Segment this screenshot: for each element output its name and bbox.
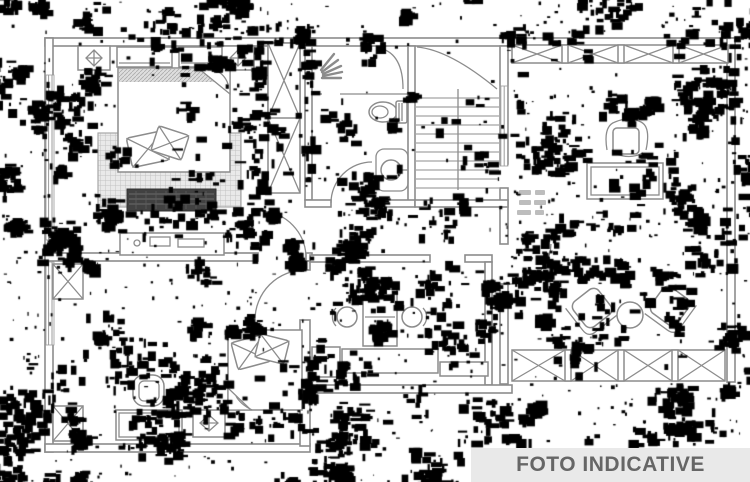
wall-segment [305,46,312,200]
wall-segment [45,444,310,452]
shower-spray-icon [321,54,342,78]
window-railing-bottom [512,350,725,381]
upper-bathroom [312,48,408,191]
office-chair-icon [606,119,648,157]
armchair-icon [645,284,697,336]
window-railing-top [512,45,728,63]
wall-segment [500,188,508,244]
wall-segment [295,385,512,393]
single-bed [228,330,302,410]
wall-segment [415,200,508,207]
radiator [500,86,508,166]
master-bedroom [78,46,254,255]
pillar [53,264,83,441]
desk [587,163,663,199]
sideboard [120,233,224,255]
door-swing [508,244,551,284]
wall-segment [500,284,508,384]
room-label-smudge [517,190,546,215]
ceiling-light-icon [193,410,225,437]
vanity-counter [342,349,438,373]
floor-plan-image: FOTO INDICATIVE [0,0,750,482]
shower-enclosure [379,48,403,89]
wardrobe [268,43,300,193]
door-swing [255,270,305,320]
wall-cabinet [117,47,172,67]
door-swing [331,162,372,203]
radiator [46,75,54,240]
vanity-counter [312,347,340,377]
washbasin-icon [402,307,427,327]
toilet-icon [369,101,407,123]
ceiling-light-icon [78,46,110,70]
bedroom-armchair [133,375,164,406]
living-room [517,119,696,337]
staircase [416,47,499,190]
armchair-icon [566,286,618,338]
washbasin-icon [332,307,357,327]
wall-segment [310,255,430,262]
second-bedroom [116,330,302,440]
door-swing [262,211,306,257]
wall-segment [300,261,310,270]
wall-segment [465,255,492,262]
lower-bathroom [312,289,488,377]
wall-segment [305,200,331,207]
wall-segment [372,200,415,207]
ceiling-light-icon [222,46,254,70]
wall-segment [727,38,735,382]
washbasin-icon [376,149,408,191]
foto-indicative-banner: FOTO INDICATIVE [471,448,750,482]
storage-bench [127,189,216,211]
wall-segment [408,46,415,204]
banner-label: FOTO INDICATIVE [516,453,705,477]
floor-plan-drawing [0,0,750,482]
vanity-counter [440,362,488,376]
dresser [116,410,182,440]
coffee-table [617,302,643,328]
